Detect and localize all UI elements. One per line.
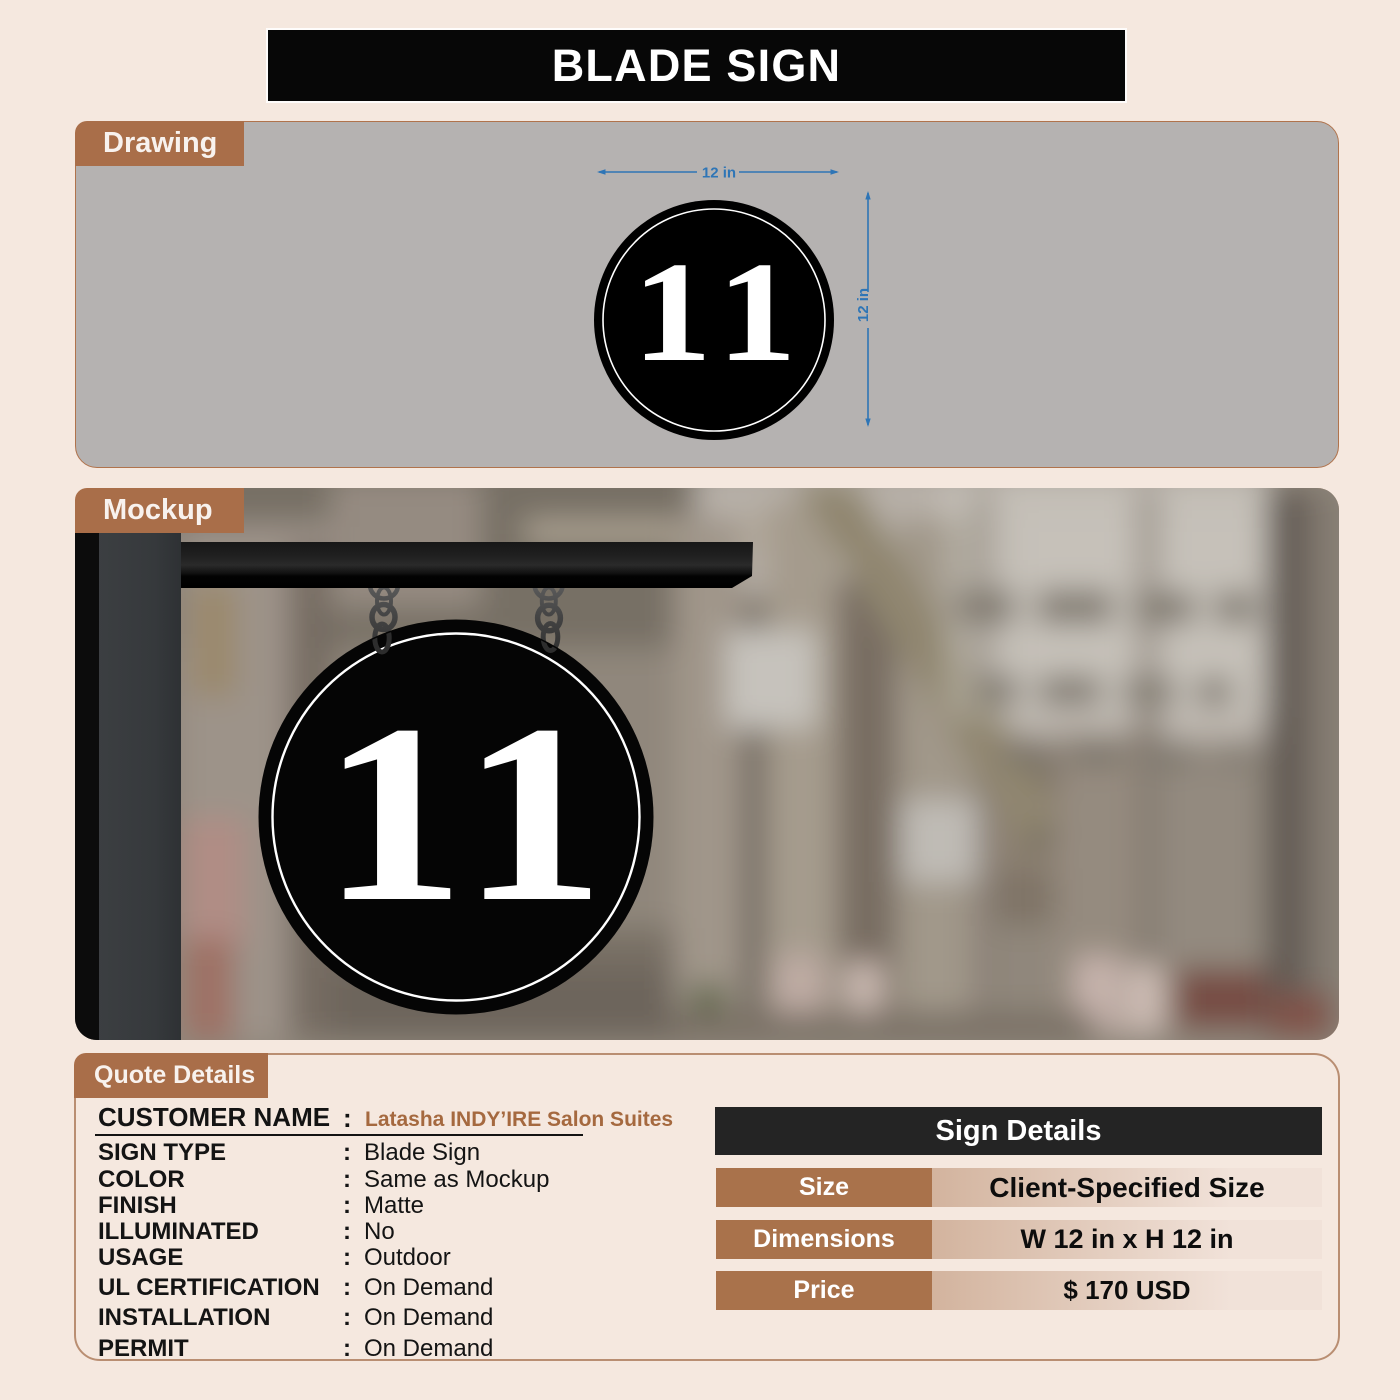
svg-text:1: 1 — [461, 672, 605, 955]
svg-text:1: 1 — [322, 672, 466, 955]
svg-text:1: 1 — [717, 232, 797, 391]
svg-text:12 in: 12 in — [702, 165, 736, 182]
svg-text:12 in: 12 in — [855, 288, 872, 322]
svg-text:1: 1 — [632, 232, 712, 391]
